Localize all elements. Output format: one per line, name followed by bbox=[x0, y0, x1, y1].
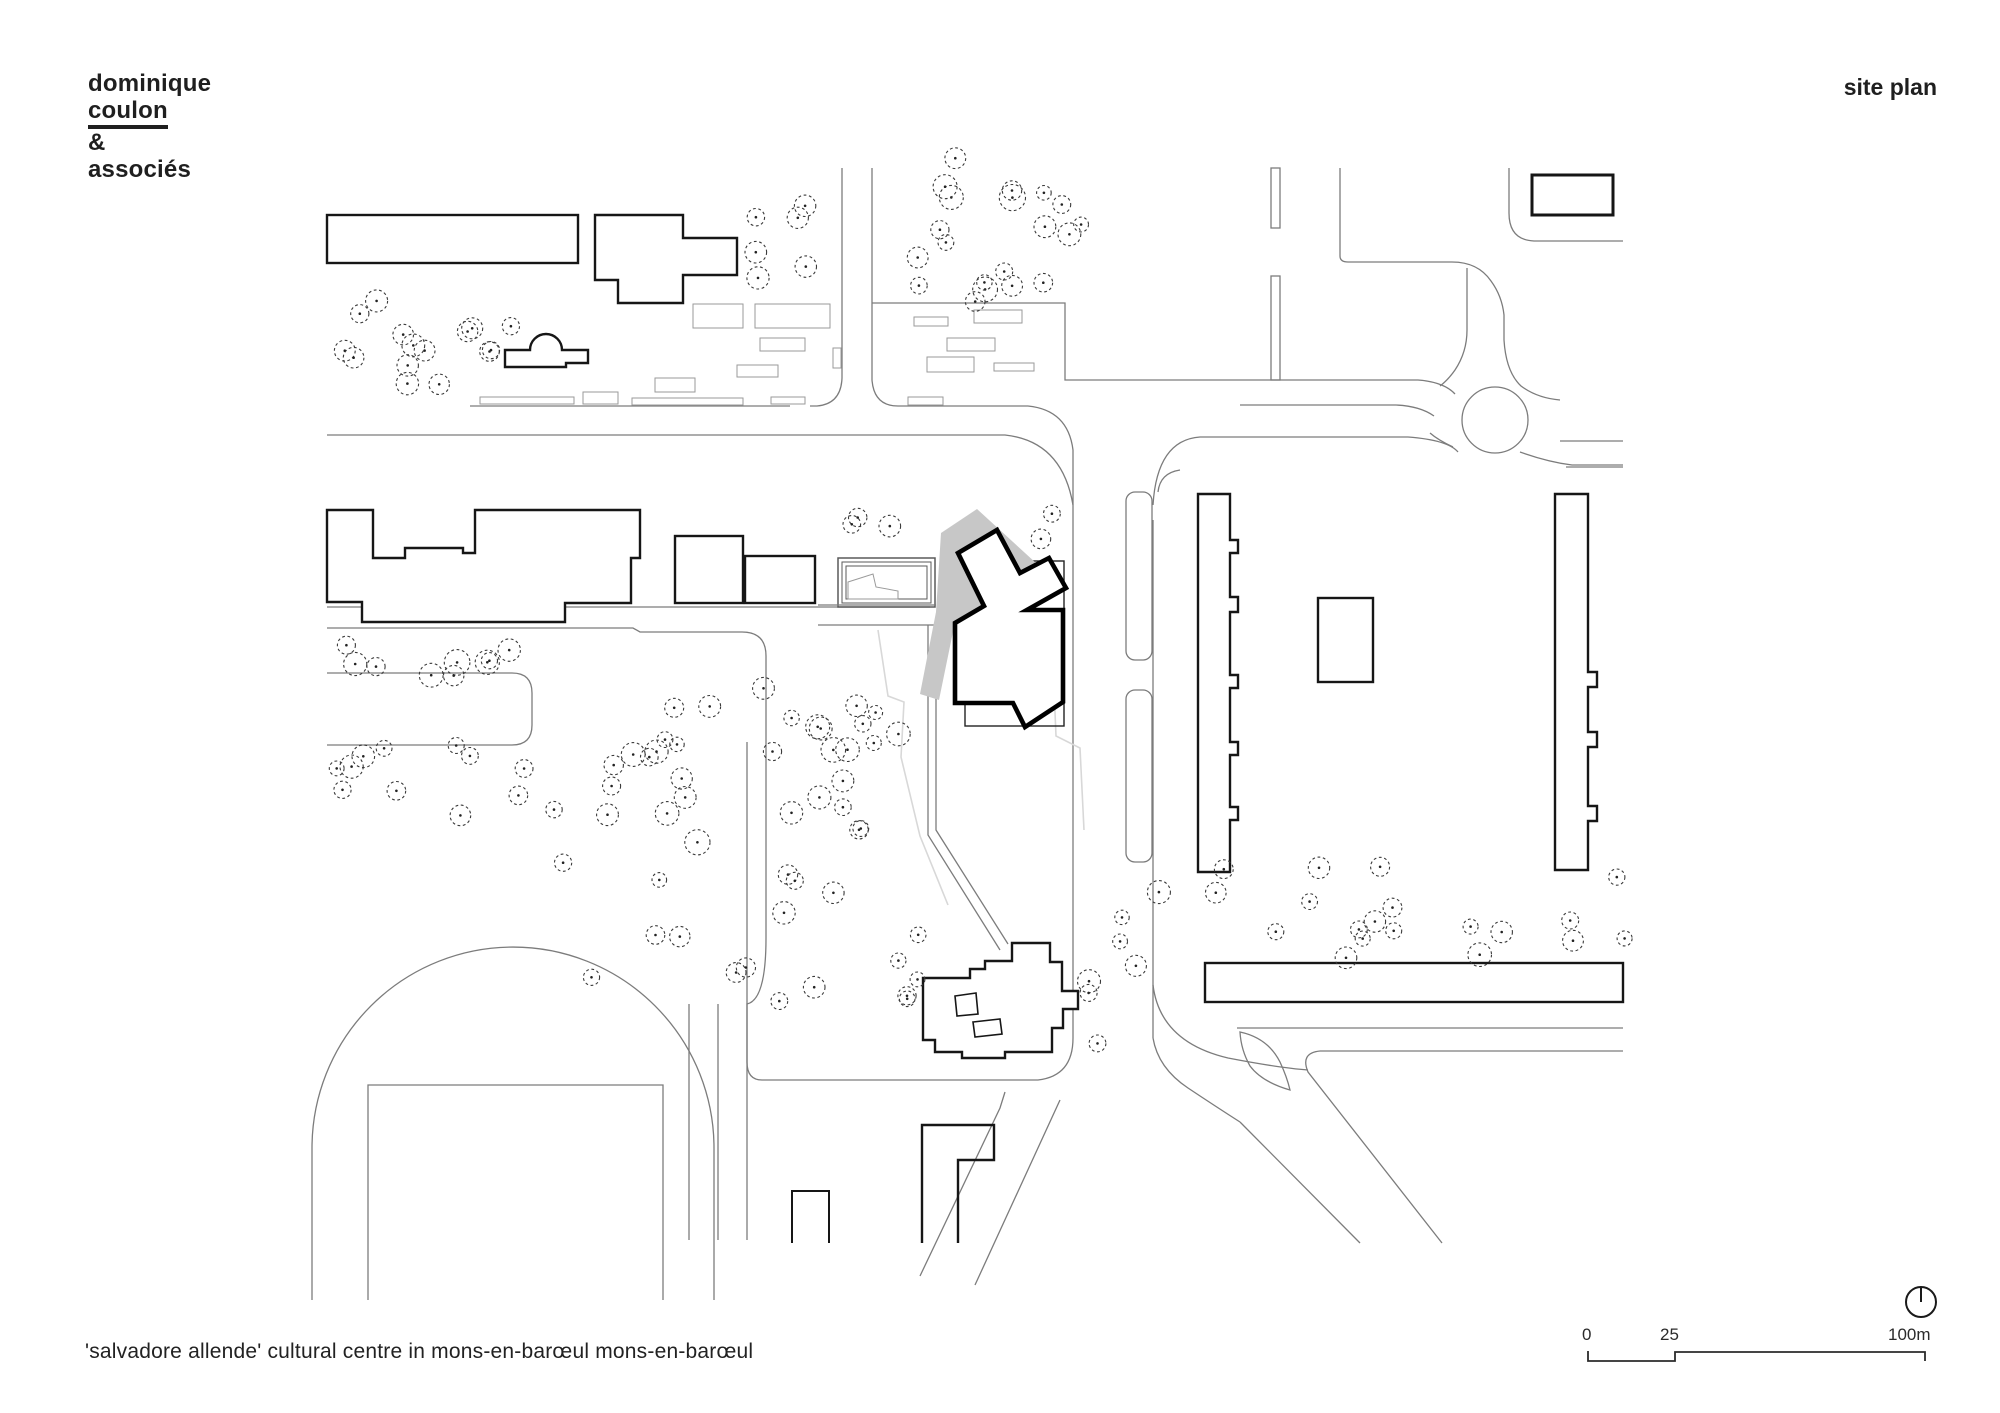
tree-symbol bbox=[1115, 910, 1129, 924]
tree-symbol bbox=[832, 770, 854, 792]
street-segment bbox=[1240, 380, 1455, 394]
tree-symbol bbox=[376, 740, 392, 756]
tree-symbol bbox=[583, 969, 599, 985]
tree-symbol bbox=[1386, 923, 1402, 939]
tree-symbol bbox=[604, 755, 623, 774]
tree-symbol bbox=[726, 963, 746, 983]
tree-symbol bbox=[482, 342, 499, 359]
tree-symbol bbox=[444, 650, 470, 676]
cultural-centre-building bbox=[955, 530, 1066, 727]
tree-symbol bbox=[450, 805, 471, 826]
tree-symbol bbox=[780, 802, 802, 824]
tree-symbol bbox=[351, 305, 369, 323]
walkway bbox=[327, 607, 930, 1240]
tree-symbol bbox=[879, 515, 901, 537]
tree-symbol bbox=[670, 926, 690, 946]
tree-symbol bbox=[555, 854, 572, 871]
tree-symbol bbox=[699, 696, 721, 718]
tree-symbol bbox=[414, 340, 435, 361]
tree-symbol bbox=[996, 263, 1013, 280]
tree-symbol bbox=[665, 698, 684, 717]
tree-symbol bbox=[1563, 930, 1584, 951]
tree-symbol bbox=[907, 247, 928, 268]
road-se-edge bbox=[1306, 1051, 1442, 1243]
building-court-centre bbox=[1318, 598, 1373, 682]
tree-symbol bbox=[786, 872, 803, 889]
tree-symbol bbox=[1308, 857, 1329, 878]
tree-symbol bbox=[480, 342, 500, 362]
tree-symbol bbox=[977, 275, 992, 290]
church-annex bbox=[973, 1019, 1002, 1037]
tree-symbol bbox=[773, 902, 795, 924]
tree-symbol bbox=[1058, 223, 1081, 246]
tree-symbol bbox=[462, 748, 479, 765]
forecourt bbox=[818, 558, 936, 625]
tree-symbol bbox=[794, 195, 815, 216]
tree-symbol bbox=[1089, 1035, 1106, 1052]
tree-symbol bbox=[836, 738, 860, 762]
tree-symbol bbox=[475, 650, 499, 674]
tree-symbol bbox=[1080, 984, 1097, 1001]
tree-symbol bbox=[1113, 934, 1128, 949]
building-church bbox=[923, 943, 1078, 1058]
median-strip bbox=[1126, 690, 1152, 862]
tree-symbol bbox=[1463, 919, 1478, 934]
tree-symbol bbox=[344, 652, 367, 675]
tree-symbol bbox=[444, 665, 464, 685]
tree-symbol bbox=[657, 732, 673, 748]
building-square-west bbox=[675, 536, 743, 603]
tree-symbol bbox=[1078, 970, 1101, 993]
tree-symbol bbox=[846, 695, 867, 716]
tree-symbol bbox=[1034, 273, 1053, 292]
tree-symbol bbox=[1034, 216, 1056, 238]
tree-symbol bbox=[1147, 881, 1170, 904]
tree-symbol bbox=[674, 787, 696, 809]
traffic-island bbox=[1240, 1032, 1290, 1090]
tree-symbol bbox=[1491, 921, 1512, 942]
roundabout-flare bbox=[1520, 452, 1623, 465]
tree-symbol bbox=[806, 715, 830, 739]
tree-symbol bbox=[337, 636, 355, 654]
tree-symbol bbox=[747, 209, 764, 226]
tree-symbol bbox=[891, 953, 906, 968]
building-south-long bbox=[1205, 963, 1623, 1002]
tree-symbol bbox=[1302, 894, 1318, 910]
tree-symbol bbox=[1371, 857, 1390, 876]
tree-symbol bbox=[419, 663, 443, 687]
tree-symbol bbox=[887, 722, 911, 746]
north-arrow-icon bbox=[1906, 1287, 1936, 1317]
cultural-centre-group bbox=[920, 509, 1066, 727]
housing-slab-west bbox=[1198, 494, 1238, 872]
tree-symbol bbox=[931, 221, 949, 239]
tree-symbol bbox=[462, 318, 483, 339]
tree-symbol bbox=[853, 821, 869, 837]
tree-symbol bbox=[1044, 505, 1061, 522]
building-small-apse bbox=[505, 334, 588, 367]
tree-symbol bbox=[1053, 196, 1071, 214]
median-strip bbox=[1126, 492, 1152, 660]
tree-symbol bbox=[621, 743, 645, 767]
building-school bbox=[327, 510, 640, 622]
stadium-arc bbox=[312, 947, 714, 1300]
tree-symbol bbox=[1351, 921, 1368, 938]
tree-symbol bbox=[945, 148, 966, 169]
tree-symbol bbox=[402, 334, 425, 357]
tree-symbol bbox=[855, 716, 871, 732]
tree-symbol bbox=[1383, 898, 1402, 917]
tree-symbol bbox=[498, 639, 520, 661]
tree-symbol bbox=[1617, 931, 1632, 946]
tree-symbol bbox=[911, 277, 928, 294]
building-small-south bbox=[792, 1191, 829, 1243]
tree-symbol bbox=[1355, 931, 1370, 946]
scale-bar bbox=[1588, 1351, 1925, 1361]
building-north-stepped bbox=[595, 215, 737, 303]
tree-symbol bbox=[910, 927, 926, 943]
tree-symbol bbox=[481, 653, 497, 669]
tree-symbol bbox=[745, 241, 767, 263]
roundabout-flare bbox=[1504, 340, 1560, 400]
tree-symbol bbox=[1037, 186, 1052, 201]
tree-symbol bbox=[397, 355, 418, 376]
tree-symbol bbox=[973, 277, 998, 302]
tree-symbol bbox=[1206, 882, 1227, 903]
tree-symbol bbox=[1562, 912, 1579, 929]
scale-bar-line bbox=[1588, 1351, 1925, 1361]
street-east-segment bbox=[1560, 441, 1623, 467]
road-sw-edge bbox=[920, 1092, 1060, 1285]
tree-symbol bbox=[784, 710, 799, 725]
tree-symbol bbox=[509, 786, 528, 805]
tree-symbol bbox=[429, 374, 449, 394]
tree-symbol bbox=[546, 801, 562, 817]
tree-symbol bbox=[652, 873, 667, 888]
forecourt-band bbox=[818, 605, 936, 625]
tree-symbol bbox=[869, 706, 883, 720]
sports-pitch bbox=[368, 1085, 663, 1300]
roundabout-flare bbox=[1440, 268, 1467, 386]
tree-symbol bbox=[343, 347, 364, 368]
tree-symbol bbox=[999, 185, 1025, 211]
tree-symbol bbox=[671, 768, 692, 789]
tree-symbol bbox=[387, 782, 406, 801]
tree-symbol bbox=[515, 760, 533, 778]
tree-symbol bbox=[1609, 869, 1625, 885]
kerb-corner bbox=[1158, 470, 1180, 492]
median-strip bbox=[1271, 168, 1280, 228]
tree-symbol bbox=[1125, 955, 1146, 976]
field-boundary bbox=[327, 673, 532, 745]
context-buildings bbox=[327, 175, 1623, 1243]
street-segment bbox=[1340, 168, 1504, 340]
tree-symbol bbox=[685, 830, 710, 855]
church-courtyard bbox=[955, 993, 978, 1016]
road-se-edge bbox=[1240, 1122, 1360, 1243]
site-plan-drawing bbox=[0, 0, 2000, 1413]
street-south-edge bbox=[327, 435, 1073, 505]
tree-symbol bbox=[787, 207, 808, 228]
tree-symbol bbox=[645, 740, 668, 763]
forecourt-ramp bbox=[848, 574, 898, 599]
tree-symbol bbox=[457, 321, 477, 341]
building-north-long bbox=[327, 215, 578, 263]
building-northeast bbox=[1532, 175, 1613, 215]
tree-symbol bbox=[366, 290, 388, 312]
tree-symbol bbox=[1268, 924, 1284, 940]
tree-symbol bbox=[655, 802, 679, 826]
tree-symbol bbox=[1002, 275, 1023, 296]
site-plan-sheet: dominique coulon & associés site plan 's… bbox=[0, 0, 2000, 1413]
tree-symbol bbox=[795, 256, 816, 277]
tree-symbol bbox=[771, 993, 788, 1010]
tree-symbol bbox=[334, 340, 355, 361]
tree-symbol bbox=[821, 738, 846, 763]
tree-symbol bbox=[899, 991, 915, 1007]
street-segment bbox=[1240, 405, 1434, 416]
tree-symbol bbox=[603, 777, 621, 795]
housing-slab-east bbox=[1555, 494, 1597, 870]
tree-symbol bbox=[866, 736, 881, 751]
street-segment bbox=[1237, 1028, 1623, 1051]
tree-symbol bbox=[747, 267, 769, 289]
tree-symbol bbox=[753, 677, 775, 699]
tree-symbol bbox=[502, 318, 519, 335]
junction-curve bbox=[1153, 1038, 1240, 1122]
median-strip bbox=[1271, 276, 1280, 380]
tree-symbol bbox=[1031, 529, 1051, 549]
tree-symbol bbox=[670, 737, 684, 751]
tree-symbol bbox=[809, 717, 832, 740]
tree-symbol bbox=[646, 926, 665, 945]
tree-symbol bbox=[1364, 911, 1385, 932]
tree-symbol bbox=[803, 976, 825, 998]
tree-symbol bbox=[933, 175, 957, 199]
road-edge bbox=[872, 168, 1028, 406]
tree-symbol bbox=[352, 745, 375, 768]
tree-symbol bbox=[597, 804, 619, 826]
tree-symbol bbox=[808, 786, 831, 809]
tree-symbol bbox=[835, 799, 852, 816]
building-square-east bbox=[745, 556, 815, 603]
roundabout-island bbox=[1462, 387, 1528, 453]
tree-symbol bbox=[823, 882, 844, 903]
tree-symbol bbox=[334, 781, 351, 798]
tree-symbol bbox=[898, 987, 916, 1005]
